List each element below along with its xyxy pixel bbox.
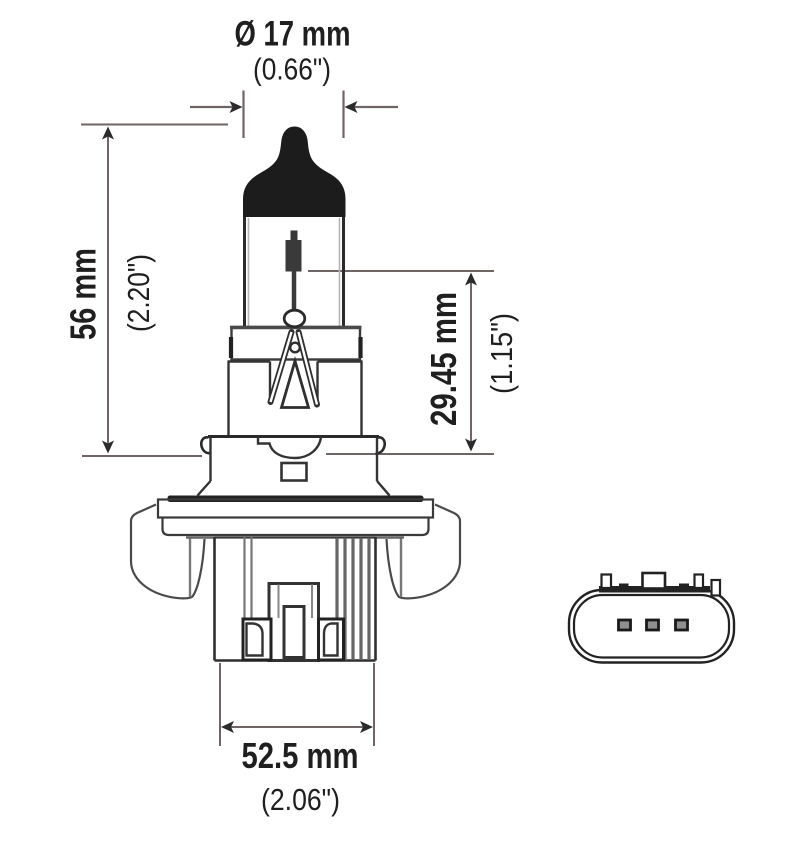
svg-text:29.45 mm: 29.45 mm [423, 292, 464, 426]
svg-text:Ø 17 mm: Ø 17 mm [235, 15, 351, 54]
svg-text:56 mm: 56 mm [63, 248, 104, 340]
svg-text:52.5 mm: 52.5 mm [242, 735, 359, 776]
svg-text:(2.06"): (2.06") [261, 782, 340, 817]
svg-text:(1.15"): (1.15") [484, 313, 519, 394]
svg-text:(2.20"): (2.20") [121, 254, 156, 332]
svg-text:(0.66"): (0.66") [253, 52, 331, 87]
